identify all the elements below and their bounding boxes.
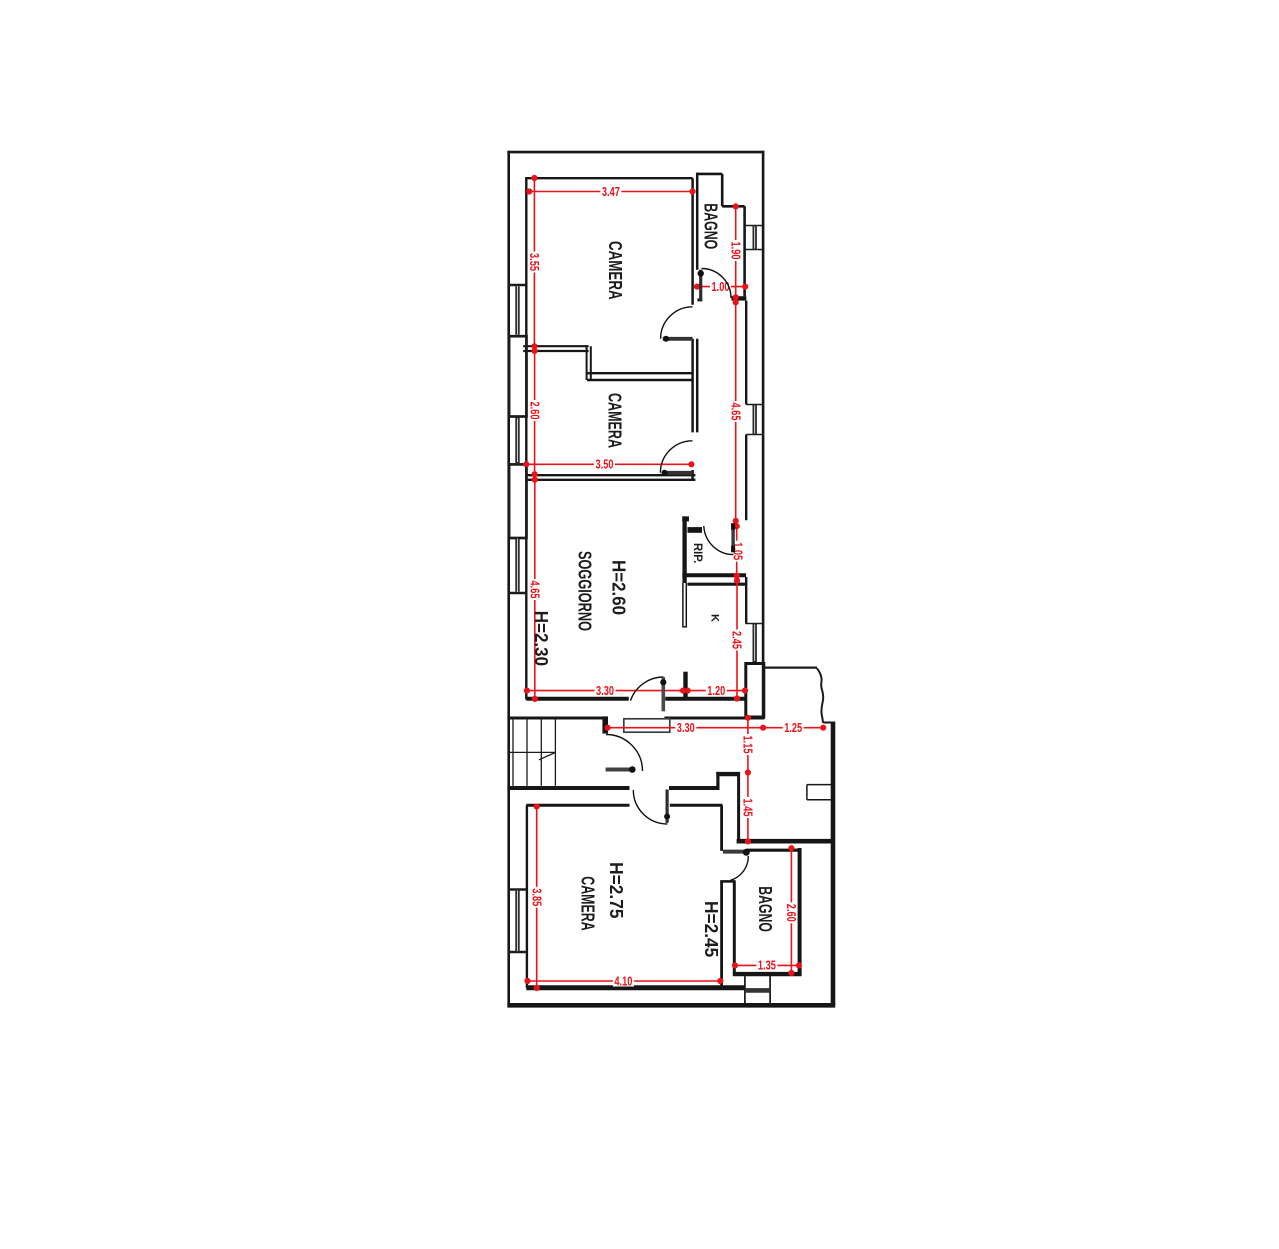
svg-text:CAMERA: CAMERA: [578, 876, 598, 931]
svg-text:H=2.75: H=2.75: [606, 862, 626, 918]
svg-text:K: K: [709, 614, 721, 622]
svg-text:4.65: 4.65: [728, 403, 742, 421]
svg-text:1.35: 1.35: [758, 959, 776, 973]
svg-text:2.60: 2.60: [527, 402, 541, 420]
svg-text:H=2.45: H=2.45: [701, 901, 721, 957]
svg-text:3.55: 3.55: [527, 253, 541, 271]
svg-text:H=2.60: H=2.60: [608, 560, 628, 615]
svg-text:CAMERA: CAMERA: [605, 241, 625, 300]
svg-text:2.45: 2.45: [730, 631, 744, 649]
svg-text:BAGNO: BAGNO: [755, 886, 775, 932]
svg-text:2.60: 2.60: [784, 904, 798, 922]
svg-text:H=2.30: H=2.30: [531, 611, 551, 666]
svg-text:4.65: 4.65: [528, 581, 542, 599]
svg-text:4.10: 4.10: [614, 974, 632, 988]
svg-text:3.85: 3.85: [529, 888, 543, 906]
svg-text:3.47: 3.47: [602, 185, 620, 199]
svg-text:BAGNO: BAGNO: [701, 203, 721, 249]
svg-text:3.30: 3.30: [596, 684, 614, 698]
svg-text:1.25: 1.25: [784, 721, 802, 735]
svg-text:RIP.: RIP.: [691, 543, 705, 564]
svg-text:1.20: 1.20: [707, 684, 725, 698]
svg-text:3.30: 3.30: [677, 721, 695, 735]
svg-text:1.90: 1.90: [728, 242, 742, 260]
svg-text:CAMERA: CAMERA: [605, 393, 625, 448]
svg-text:1.45: 1.45: [741, 799, 755, 817]
svg-text:SOGGIORNO: SOGGIORNO: [575, 551, 595, 631]
svg-text:3.50: 3.50: [596, 458, 614, 472]
svg-text:1.15: 1.15: [741, 736, 755, 754]
